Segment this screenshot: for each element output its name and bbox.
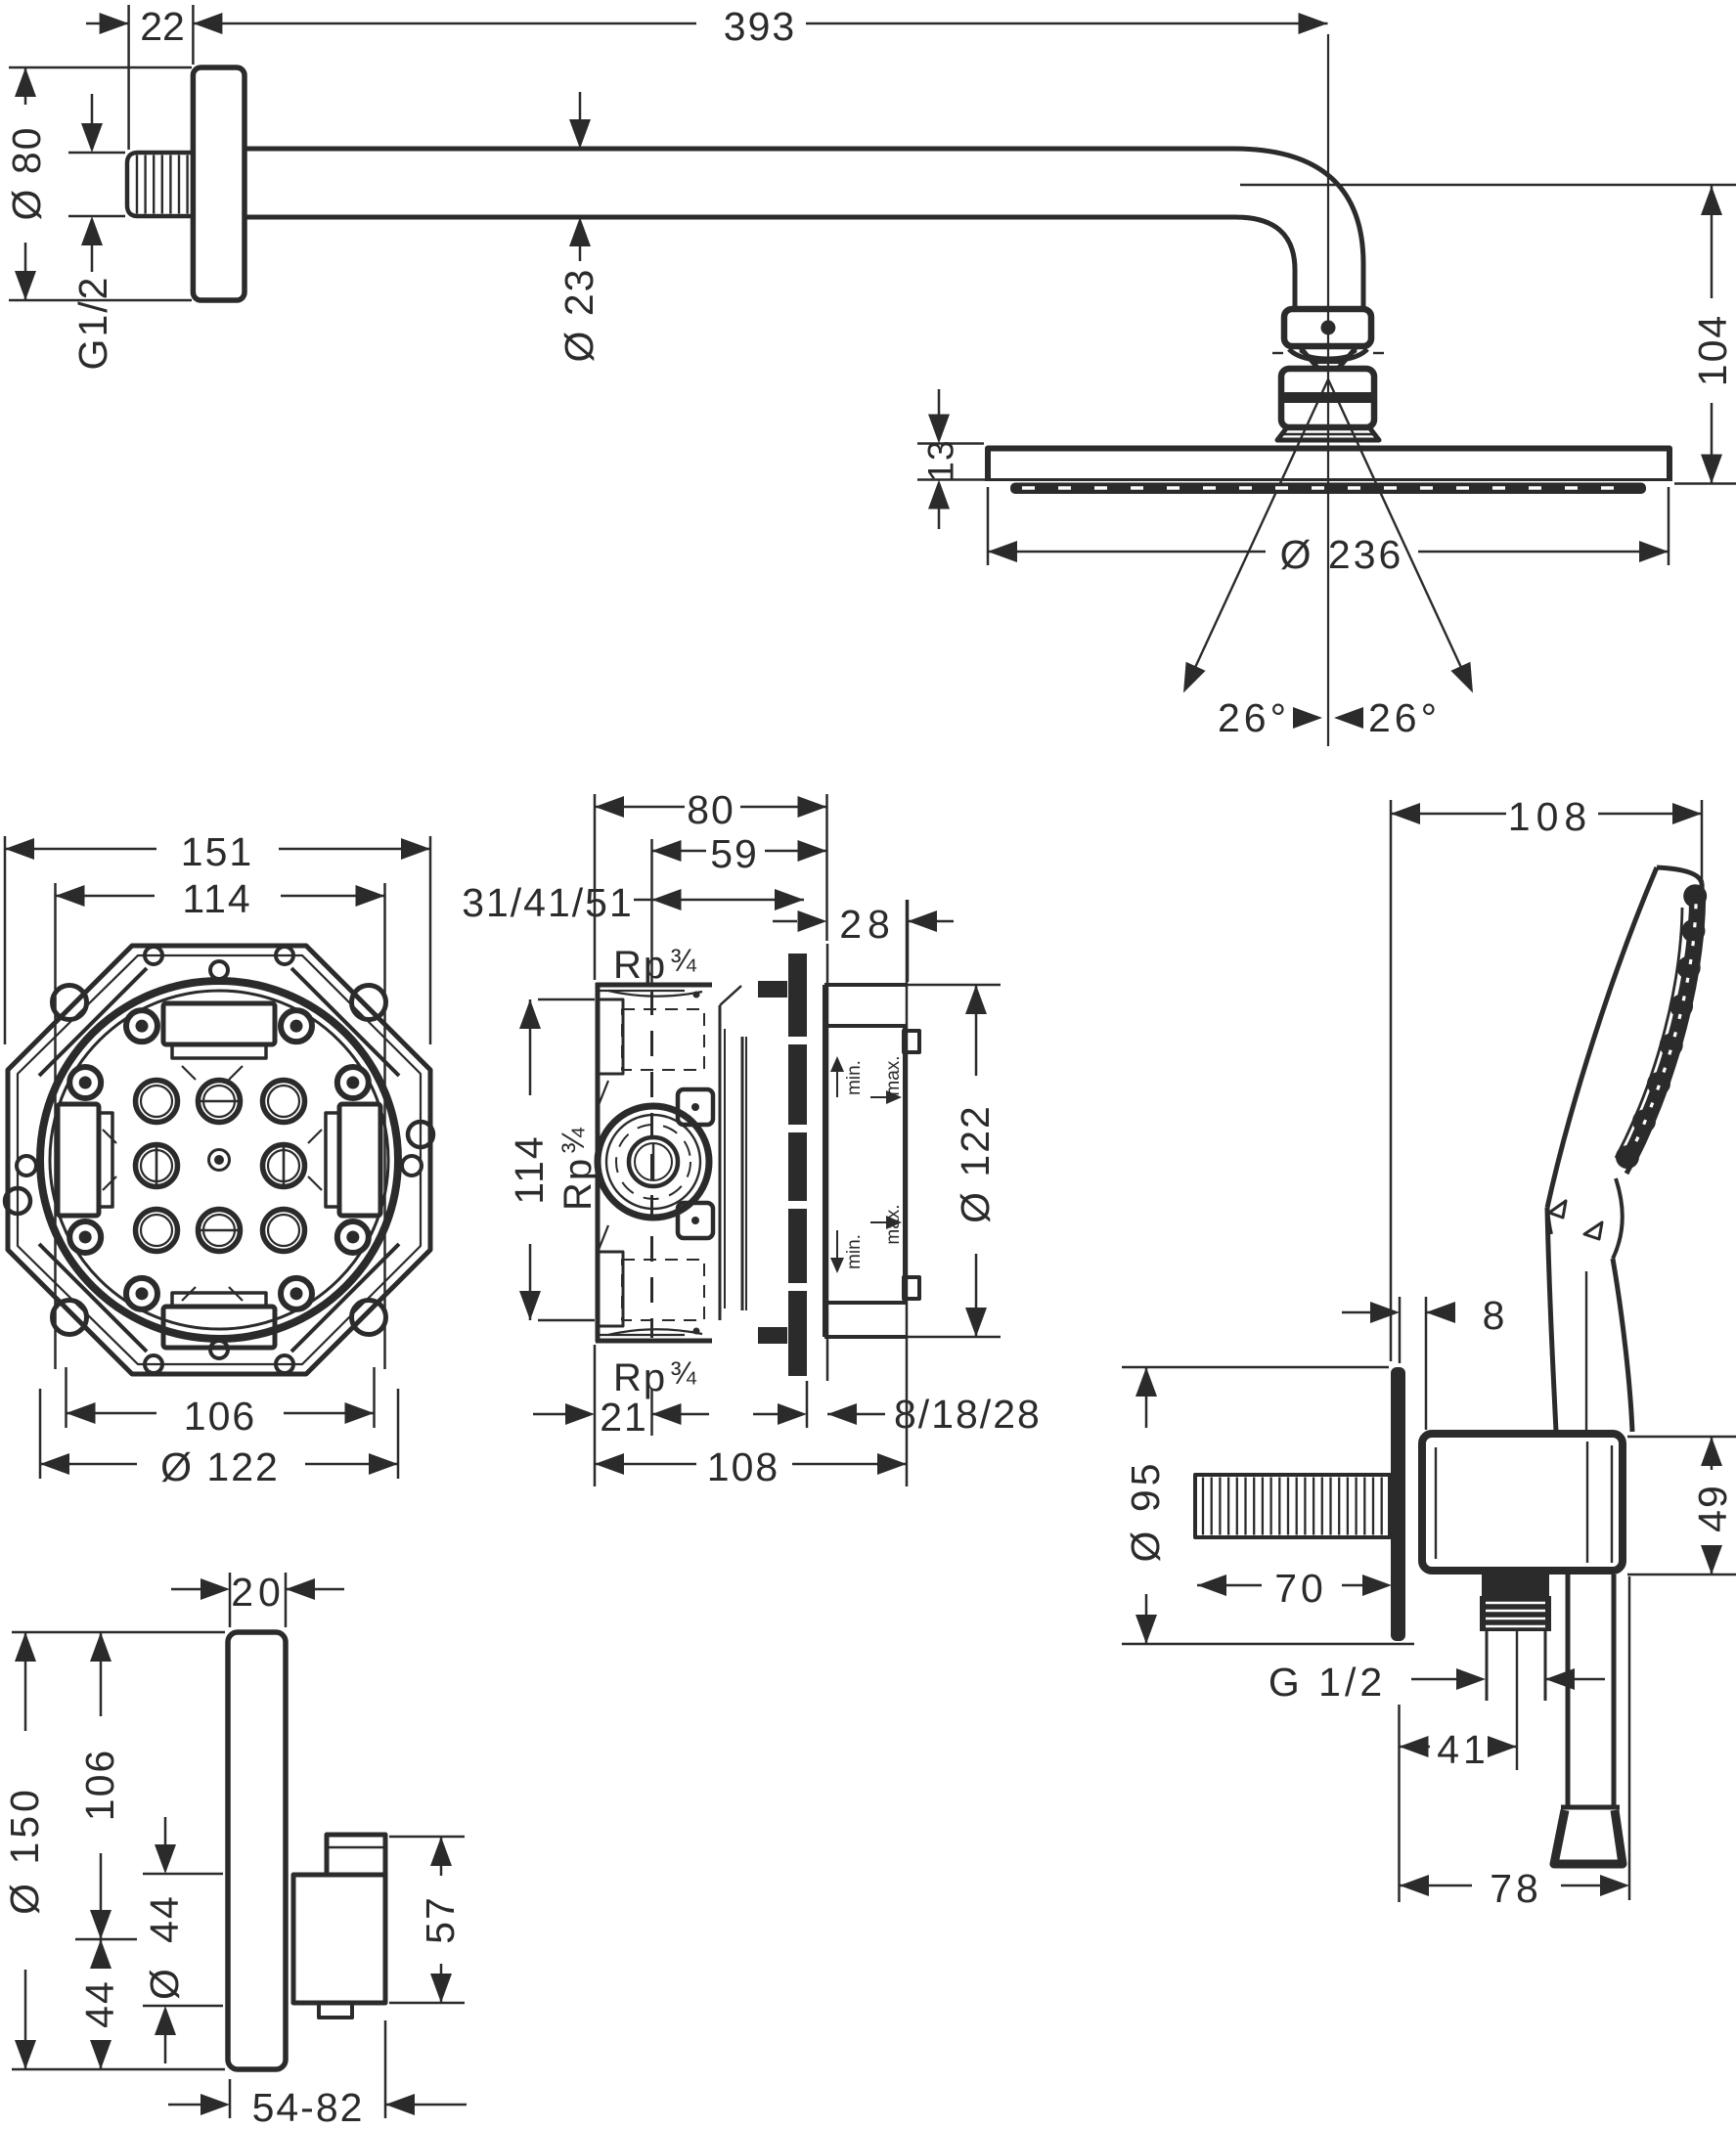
svg-text:Ø 95: Ø 95 — [1123, 1460, 1168, 1563]
svg-text:max.: max. — [883, 1055, 904, 1095]
svg-text:41: 41 — [1437, 1727, 1490, 1772]
svg-text:106: 106 — [77, 1749, 122, 1821]
svg-text:54-82: 54-82 — [252, 2085, 365, 2129]
svg-text:8: 8 — [1483, 1293, 1507, 1338]
svg-text:26°: 26° — [1218, 695, 1290, 740]
svg-text:Ø 23: Ø 23 — [556, 268, 601, 363]
svg-text:20: 20 — [231, 1570, 286, 1615]
svg-text:min.: min. — [844, 1234, 865, 1269]
svg-text:13: 13 — [920, 439, 960, 481]
svg-text:26°: 26° — [1368, 695, 1441, 740]
svg-text:59: 59 — [710, 831, 759, 876]
svg-text:114: 114 — [507, 1134, 552, 1204]
svg-text:108: 108 — [1508, 794, 1592, 839]
svg-text:Ø 122: Ø 122 — [953, 1104, 998, 1223]
svg-text:G1/2: G1/2 — [70, 276, 115, 371]
svg-text:22: 22 — [140, 4, 185, 49]
svg-text:Ø 122: Ø 122 — [160, 1444, 280, 1489]
svg-text:Ø 236: Ø 236 — [1280, 532, 1404, 577]
svg-text:28: 28 — [839, 902, 896, 947]
svg-text:31/41/51: 31/41/51 — [462, 880, 634, 925]
svg-text:151: 151 — [181, 829, 253, 874]
svg-text:393: 393 — [724, 4, 796, 49]
svg-text:49: 49 — [1690, 1484, 1735, 1532]
svg-text:44: 44 — [77, 1979, 122, 2028]
svg-text:80: 80 — [687, 787, 735, 832]
svg-text:106: 106 — [184, 1394, 256, 1439]
svg-text:min.: min. — [844, 1060, 865, 1095]
svg-text:78: 78 — [1490, 1866, 1542, 1911]
svg-text:8/18/28: 8/18/28 — [894, 1392, 1042, 1437]
svg-text:108: 108 — [707, 1444, 779, 1489]
svg-text:Ø 80: Ø 80 — [4, 126, 49, 221]
svg-text:Ø 150: Ø 150 — [2, 1786, 47, 1915]
svg-text:44: 44 — [142, 1894, 187, 1943]
svg-text:G 1/2: G 1/2 — [1269, 1660, 1386, 1705]
svg-text:114: 114 — [182, 876, 251, 921]
svg-text:70: 70 — [1274, 1566, 1327, 1611]
svg-text:57: 57 — [418, 1895, 463, 1944]
svg-text:21: 21 — [600, 1395, 648, 1440]
svg-text:Ø: Ø — [142, 1967, 187, 2000]
svg-text:104: 104 — [1690, 314, 1735, 386]
